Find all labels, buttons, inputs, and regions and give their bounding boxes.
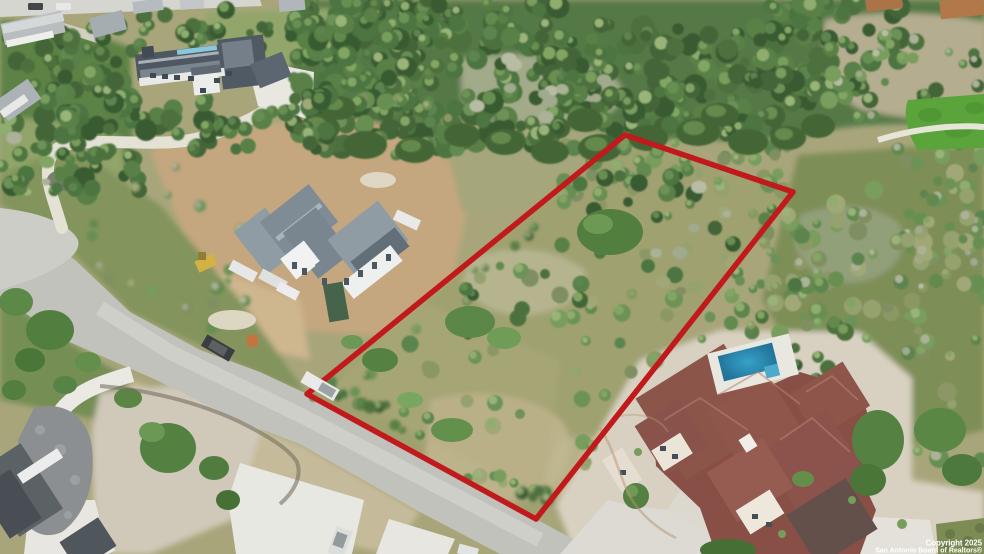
svg-text:San Antonio Board of Realtors®: San Antonio Board of Realtors®	[875, 547, 983, 554]
svg-text:Copyright 2025: Copyright 2025	[926, 539, 983, 548]
